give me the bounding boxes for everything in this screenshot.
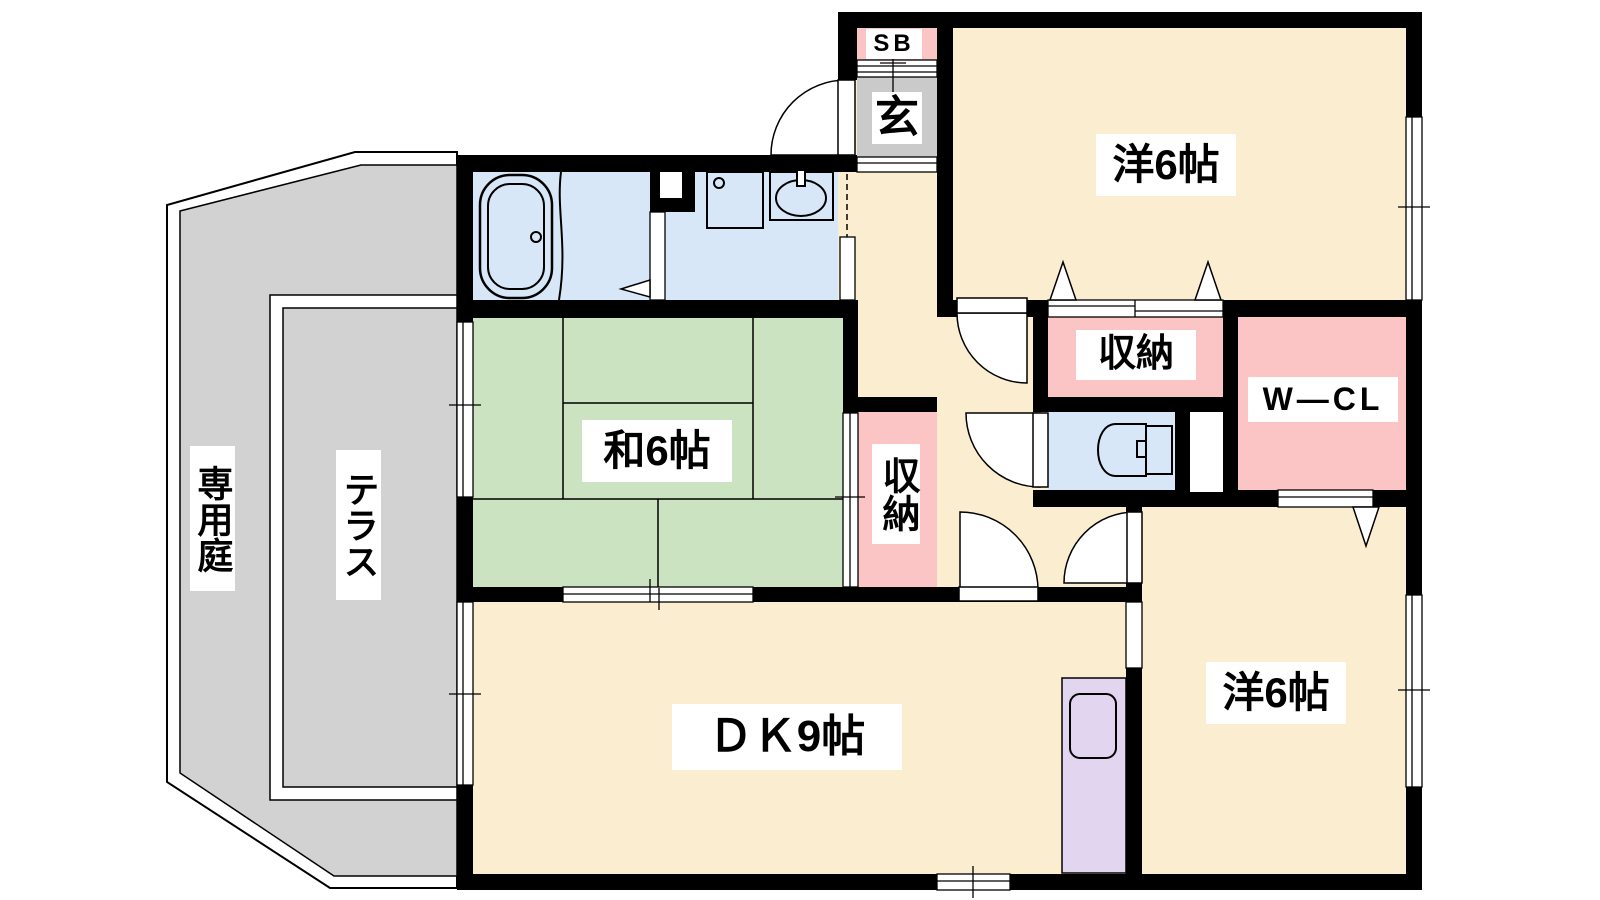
room-bathroom <box>473 172 665 300</box>
wall-storage-bottom <box>1033 397 1238 412</box>
wall-top <box>838 12 1422 28</box>
label-japanese-room: 和6帖 <box>582 420 732 482</box>
wall-entrance-corner <box>838 155 857 172</box>
wall-tatami-top <box>457 300 858 318</box>
wall-left <box>457 155 473 874</box>
label-western-room-top: 洋6帖 <box>1096 134 1236 196</box>
wall-closet-top <box>843 397 937 412</box>
label-entrance: 玄 <box>872 92 922 144</box>
wall-wcl-left <box>1223 317 1238 490</box>
label-storage-tatami: 収納 <box>872 444 920 544</box>
label-storage-hall: 収納 <box>1076 330 1196 380</box>
wall-bath-top <box>457 155 857 172</box>
wall-entrance-right <box>937 28 953 300</box>
wall-dk-western <box>1126 507 1142 890</box>
wall-western-top-bottom <box>937 300 1422 317</box>
wall-corridor-bottom <box>1033 490 1422 507</box>
wcl-niche <box>1190 412 1223 492</box>
wall-toilet-right <box>1175 412 1190 492</box>
label-dining-kitchen: ＤＫ9帖 <box>672 704 902 770</box>
label-shoe-box: SB <box>866 29 922 59</box>
label-walk-in-closet: W—CL <box>1248 377 1398 422</box>
bath-stub-notch <box>660 172 682 198</box>
wall-entrance-left <box>838 12 857 80</box>
label-garden: 専用庭 <box>190 446 235 591</box>
label-terrace: テラス <box>336 450 381 600</box>
wall-right <box>1406 12 1422 890</box>
floorplan-canvas: 洋6帖 収納 W—CL 和6帖 収納 ＤＫ9帖 洋6帖 玄 SB 専用庭 テラス <box>0 0 1600 900</box>
entry-door-arc <box>771 80 846 155</box>
wall-bottom <box>457 874 1422 890</box>
label-western-room-bottom: 洋6帖 <box>1206 662 1346 724</box>
wall-dk-top <box>457 587 1142 602</box>
room-toilet <box>1048 412 1175 492</box>
